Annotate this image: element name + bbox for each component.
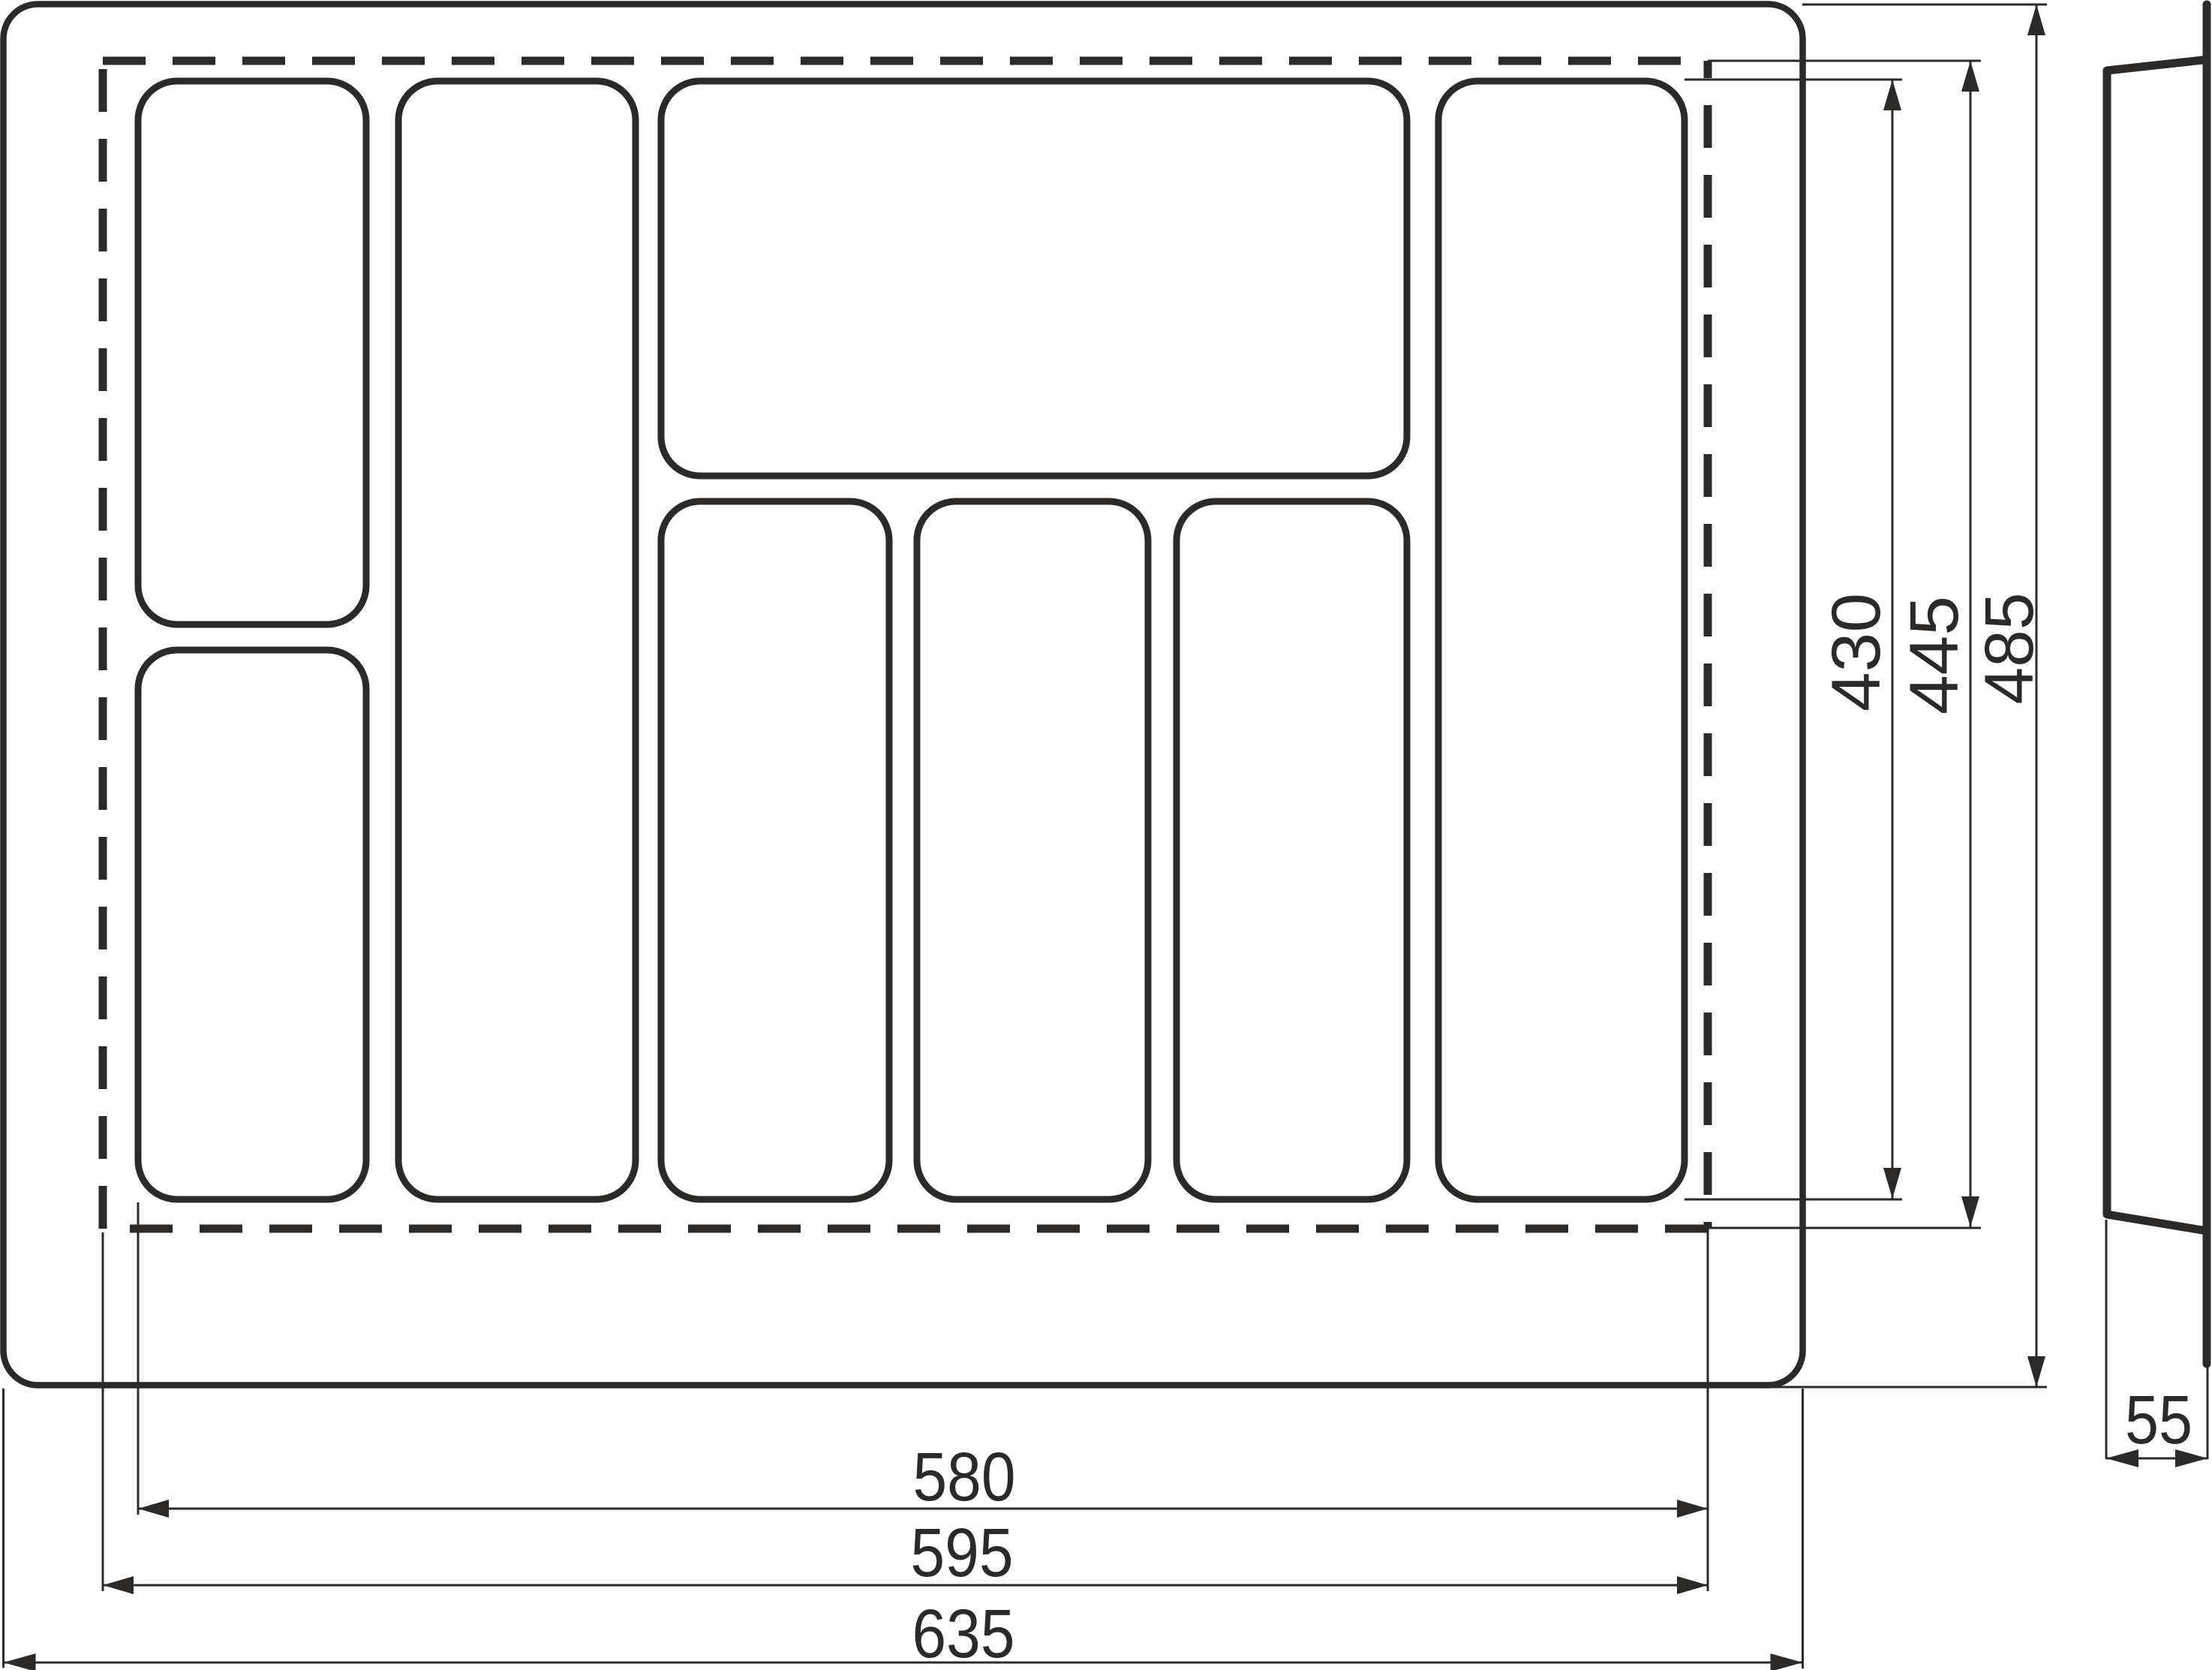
svg-text:485: 485 xyxy=(1971,593,2048,705)
svg-text:595: 595 xyxy=(911,1515,1014,1591)
svg-text:580: 580 xyxy=(913,1439,1016,1515)
svg-text:445: 445 xyxy=(1896,596,1973,715)
svg-text:635: 635 xyxy=(912,1596,1015,1670)
svg-text:55: 55 xyxy=(2125,1382,2192,1458)
svg-text:430: 430 xyxy=(1818,593,1895,712)
